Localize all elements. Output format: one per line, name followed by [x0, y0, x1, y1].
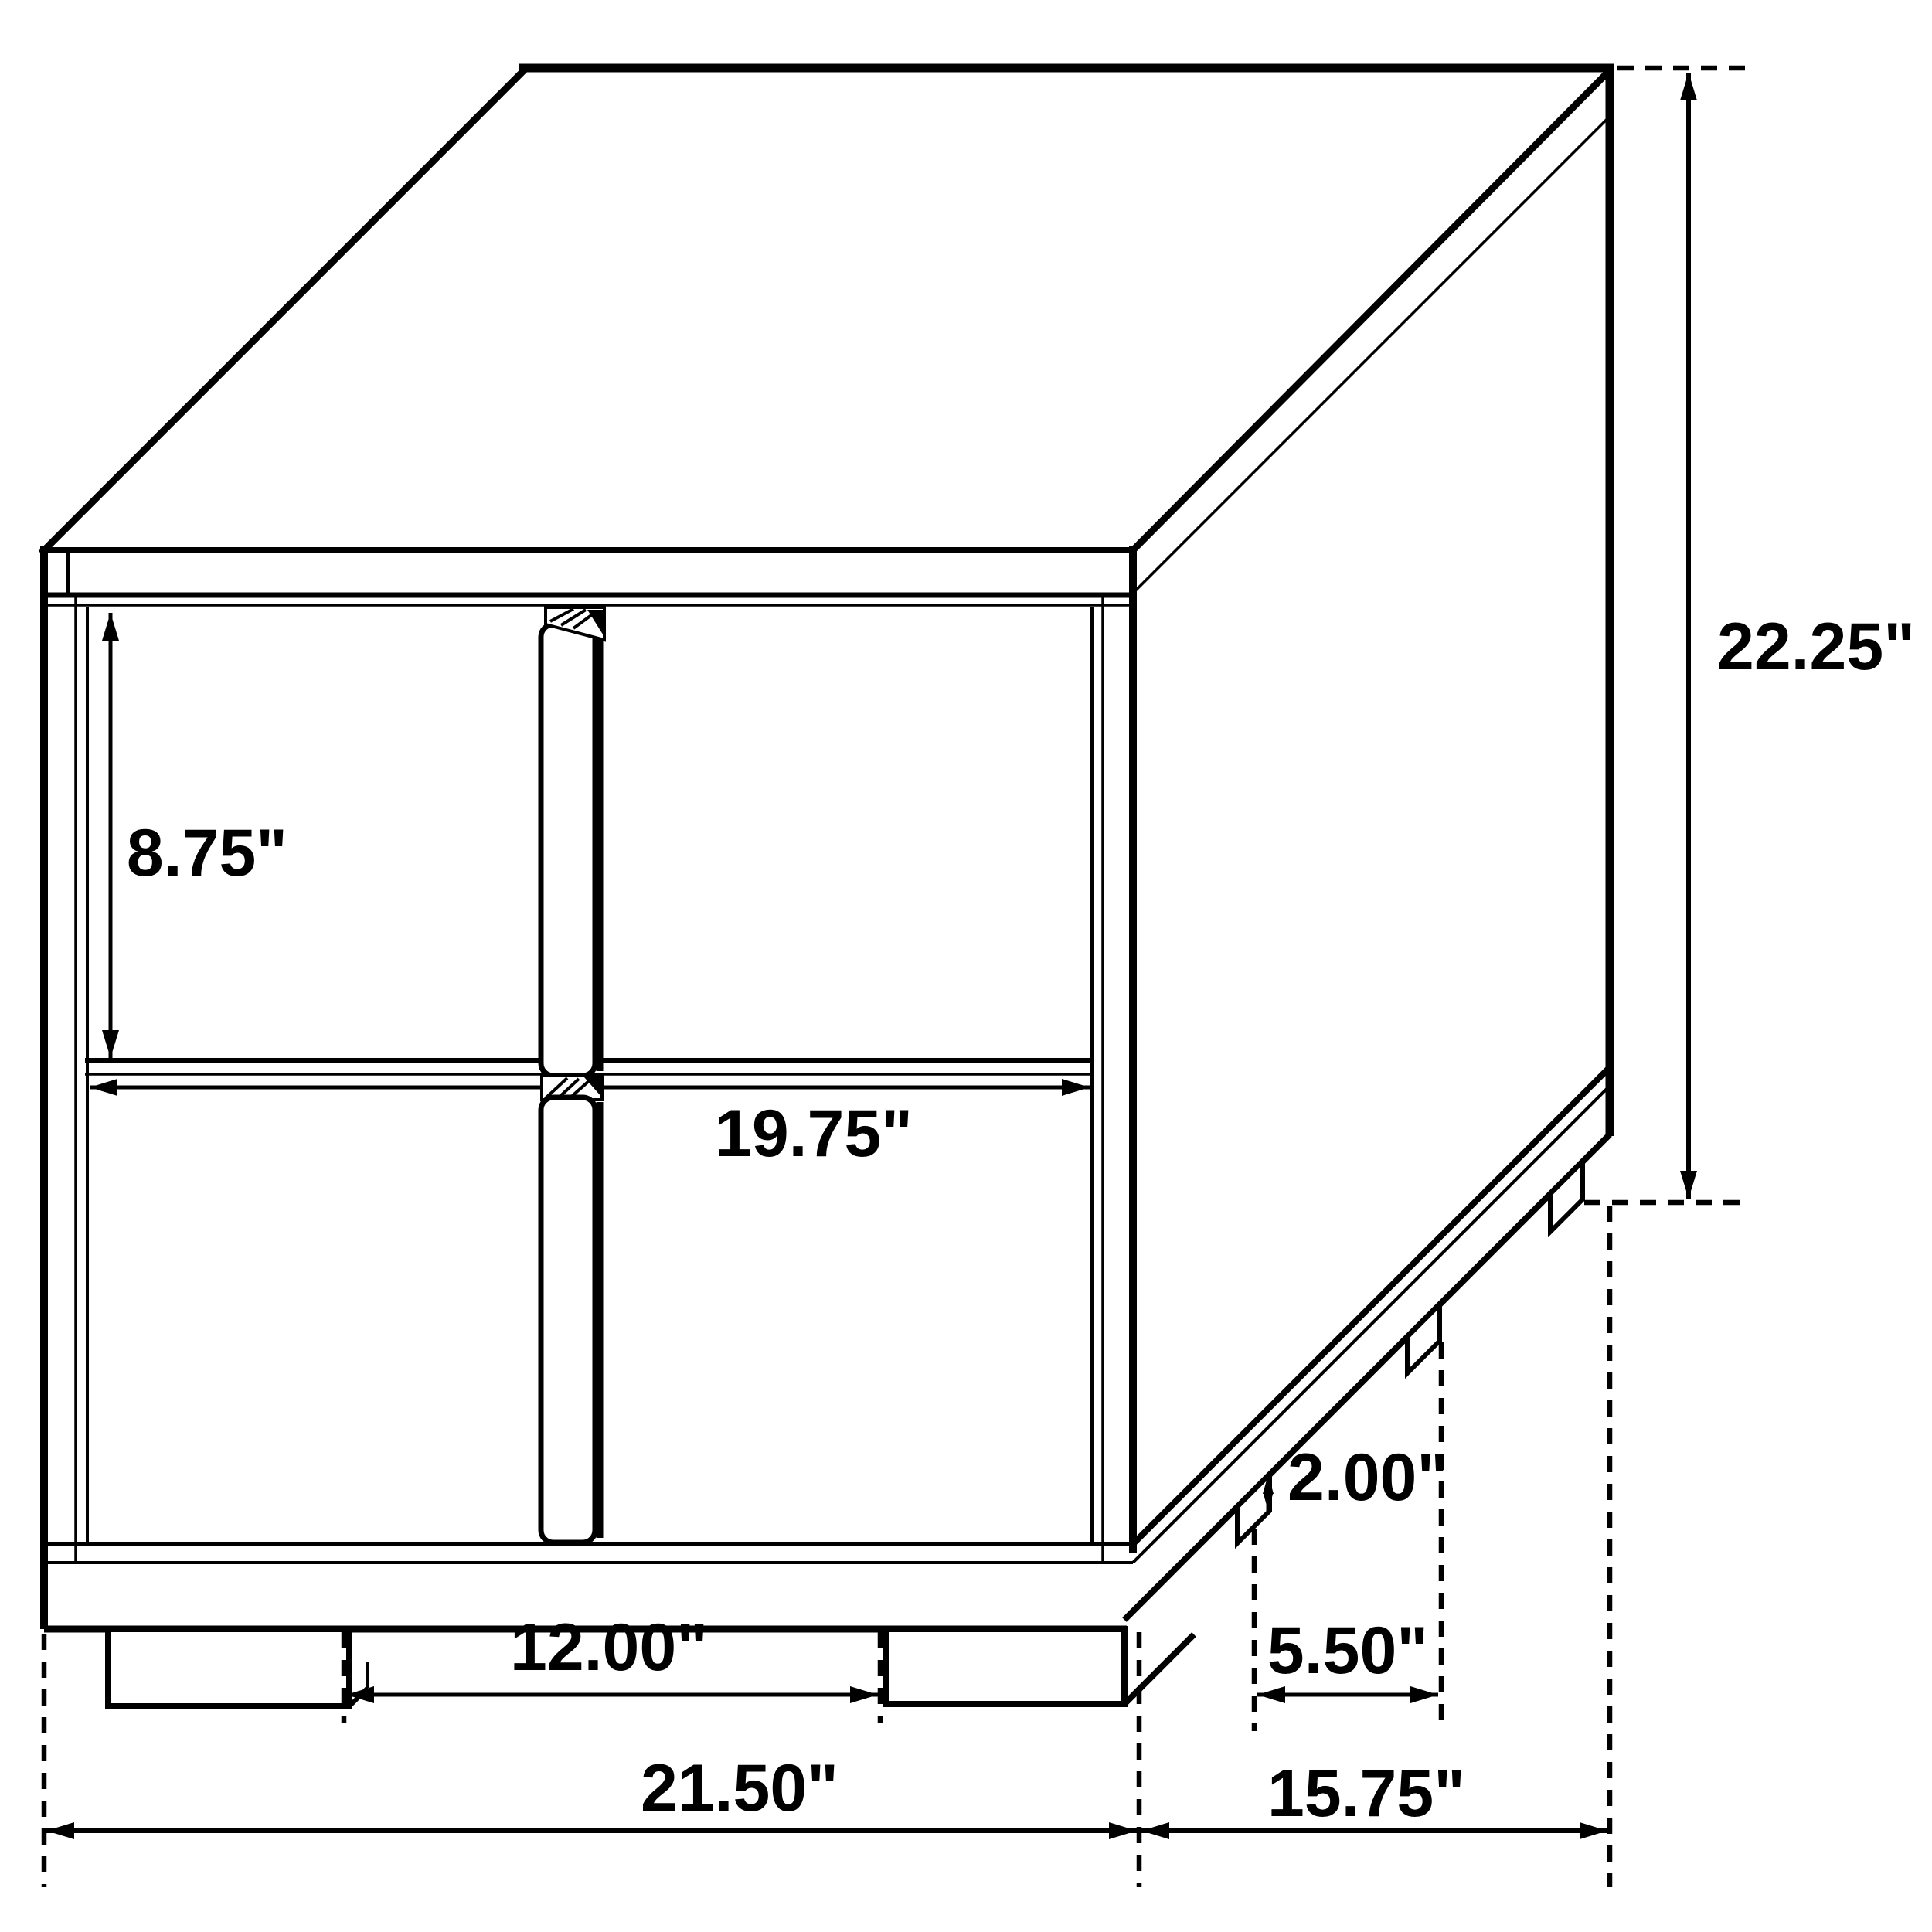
dimension-label-drawer-height: 8.75": [127, 816, 287, 890]
drawer-panel-upper-right: [603, 611, 1092, 1057]
dimension-label-side-feet-spacing: 5.50": [1267, 1614, 1428, 1688]
front-right-foot-side-edge: [1124, 1634, 1194, 1704]
front-left-foot: [108, 1629, 349, 1706]
dimension-label-overall-depth: 15.75": [1267, 1757, 1465, 1831]
diagram-page: 8.75" 19.75" 22.25" 2.00" 5.50" 12.00" 2…: [0, 0, 1932, 1932]
dimension-label-overall-width: 21.50": [641, 1751, 838, 1825]
drawer-pull-rails: [541, 607, 604, 1543]
back-corner-foot: [1550, 1162, 1583, 1232]
lower-pull-rail: [541, 1097, 595, 1543]
dimension-foot-height: 2.00": [1268, 1440, 1448, 1515]
dimension-label-drawer-width: 19.75": [715, 1097, 913, 1171]
upper-pull-rail: [541, 624, 595, 1076]
dimension-label-foot-height: 2.00": [1287, 1440, 1448, 1515]
dimension-overall-height: 22.25": [1584, 68, 1915, 1202]
drawer-panel-lower-left: [87, 1074, 541, 1544]
nightstand-dimension-diagram: 8.75" 19.75" 22.25" 2.00" 5.50" 12.00" 2…: [0, 0, 1932, 1932]
side-foot-rear: [1407, 1304, 1440, 1373]
dimension-label-overall-height: 22.25": [1717, 610, 1915, 684]
dimension-label-front-feet-spacing: 12.00": [510, 1611, 708, 1685]
front-right-foot: [886, 1629, 1124, 1704]
